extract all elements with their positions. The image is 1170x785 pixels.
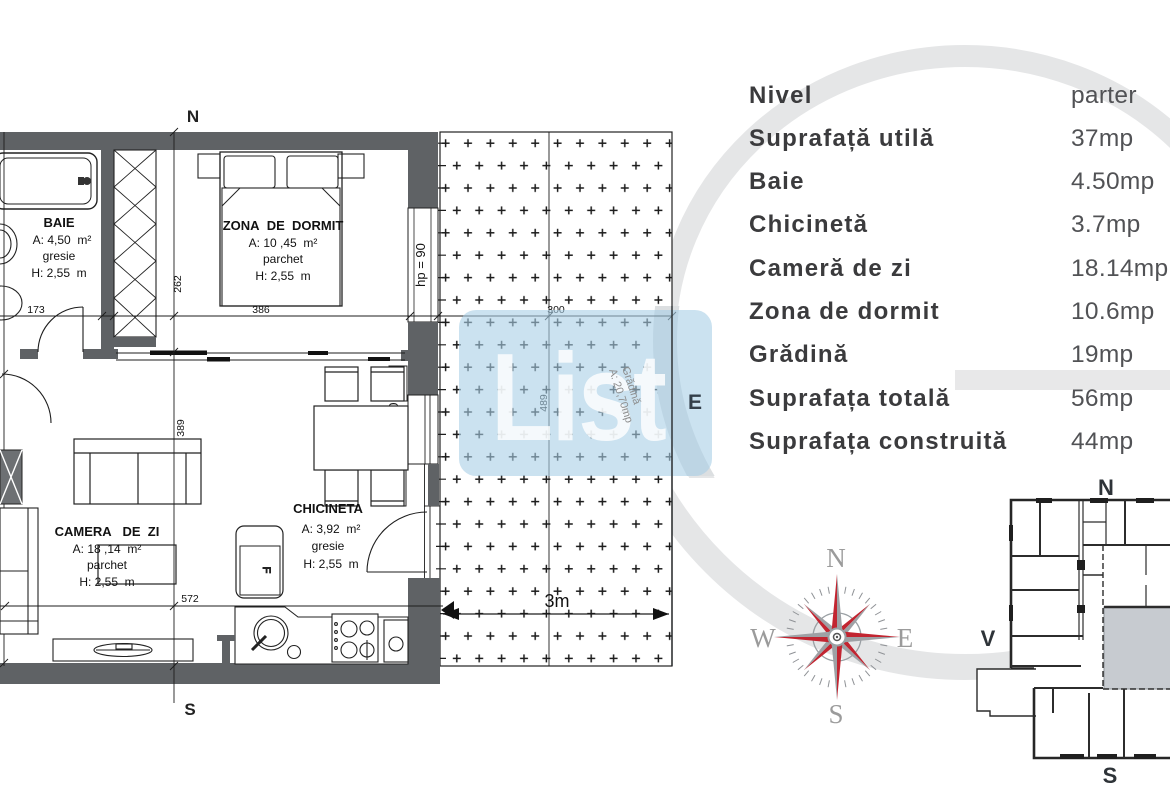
svg-text:W: W: [750, 623, 776, 653]
svg-text:gresie: gresie: [312, 539, 345, 553]
svg-text:E: E: [688, 391, 702, 414]
svg-text:S: S: [1103, 763, 1118, 785]
svg-text:S: S: [184, 700, 195, 719]
svg-text:hp = 90: hp = 90: [413, 243, 428, 287]
svg-text:S: S: [828, 699, 843, 729]
svg-text:CAMERA DE ZI: CAMERA DE ZI: [55, 524, 160, 539]
svg-text:H: 2,55 m: H: 2,55 m: [255, 269, 310, 283]
svg-text:3m: 3m: [544, 591, 569, 611]
svg-text:A: 4,50 m²: A: 4,50 m²: [33, 233, 92, 247]
svg-text:H: 2,55 m: H: 2,55 m: [303, 557, 358, 571]
svg-text:389: 389: [175, 419, 187, 437]
svg-text:CHICINETA: CHICINETA: [293, 501, 363, 516]
svg-text:N: N: [826, 543, 846, 573]
svg-text:N: N: [187, 107, 199, 126]
svg-text:A: 3,92 m²: A: 3,92 m²: [302, 522, 361, 536]
svg-text:ZONA DE DORMIT: ZONA DE DORMIT: [223, 218, 344, 233]
svg-text:BAIE: BAIE: [43, 215, 74, 230]
svg-text:H: 2,55 m: H: 2,55 m: [79, 575, 134, 589]
svg-text:V: V: [981, 626, 996, 651]
svg-text:parchet: parchet: [263, 252, 304, 266]
svg-text:A: 18 ,14 m²: A: 18 ,14 m²: [73, 542, 142, 556]
svg-text:gresie: gresie: [43, 249, 76, 263]
svg-text:572: 572: [181, 593, 199, 605]
svg-text:173: 173: [27, 304, 45, 316]
svg-text:parchet: parchet: [87, 558, 128, 572]
svg-text:E: E: [897, 623, 914, 653]
svg-text:H: 2,55 m: H: 2,55 m: [31, 266, 86, 280]
svg-text:F: F: [260, 567, 272, 574]
svg-text:262: 262: [172, 275, 184, 293]
svg-text:N: N: [1098, 475, 1114, 500]
svg-text:A: 10 ,45 m²: A: 10 ,45 m²: [249, 236, 318, 250]
svg-text:386: 386: [252, 304, 270, 316]
